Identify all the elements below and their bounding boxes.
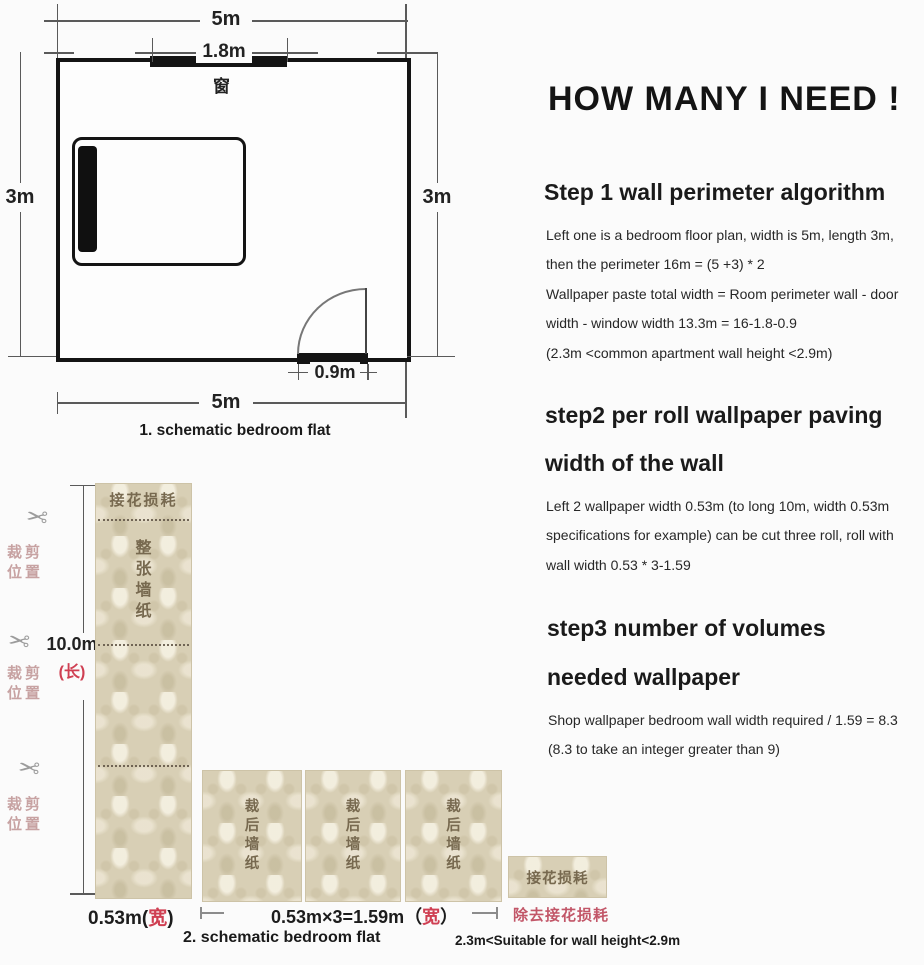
dim-door-plusR-h xyxy=(357,372,377,374)
step1-heading: Step 1 wall perimeter algorithm xyxy=(544,179,885,206)
total-width-suffix: ） xyxy=(440,907,458,927)
roll-diagram-caption: 2. schematic bedroom flat xyxy=(183,929,380,947)
roll-dim-tick-bottom xyxy=(70,893,97,895)
scissors-icon: ✂ xyxy=(6,625,31,658)
step1-body: Left one is a bedroom floor plan, width … xyxy=(546,221,898,368)
bed xyxy=(72,137,246,266)
cut-position-line1: 裁剪 xyxy=(7,795,43,815)
step1-line: then the perimeter 16m = (5 +3) * 2 xyxy=(546,250,898,279)
step1-line: Left one is a bedroom floor plan, width … xyxy=(546,221,898,250)
dim-door-label: 0.9m xyxy=(310,362,360,383)
step2-line: wall width 0.53 * 3-1.59 xyxy=(546,551,894,580)
wall-height-note: 2.3m<Suitable for wall height<2.9m xyxy=(455,933,680,948)
dim-ext-right xyxy=(405,4,407,58)
scissors-icon: ✂ xyxy=(16,752,41,785)
step3-body: Shop wallpaper bedroom wall width requir… xyxy=(548,706,898,765)
cut-position-line2: 位置 xyxy=(7,684,43,704)
dim-window-tick-left xyxy=(152,38,154,62)
dim-bottom-tick-left xyxy=(57,392,59,414)
extent-tick-right-h xyxy=(472,912,498,914)
total-width-unit: 宽 xyxy=(422,907,440,927)
roll-width-label: 0.53m(宽) xyxy=(88,903,174,930)
total-width-prefix: 0.53m×3=1.59m（ xyxy=(271,907,422,927)
roll-length-unit: (长) xyxy=(48,658,96,682)
extent-tick-left-h xyxy=(200,912,224,914)
roll-width-unit: 宽 xyxy=(148,908,167,929)
cut-roll-label: 裁后墙纸 xyxy=(346,798,361,874)
pattern-waste-label: 接花损耗 xyxy=(96,489,191,510)
step3-heading-line2: needed wallpaper xyxy=(547,664,740,691)
full-roll-label: 整张墙纸 xyxy=(135,538,153,622)
cut-roll-strip: 裁后墙纸 xyxy=(202,770,302,902)
dim-bottom-label: 5m xyxy=(199,391,253,414)
floor-plan-caption: 1. schematic bedroom flat xyxy=(120,422,350,440)
step3-heading-line1: step3 number of volumes xyxy=(547,615,826,642)
cut-line xyxy=(98,644,189,646)
step2-heading-line2: width of the wall xyxy=(545,450,724,477)
roll-dim-line-top xyxy=(83,485,85,633)
dim-ext-left xyxy=(57,4,59,58)
bed-pillow xyxy=(78,146,97,252)
dim-right-label: 3m xyxy=(421,183,453,212)
remove-waste-label: 除去接花损耗 xyxy=(513,904,609,925)
dim-right-bottom-tick xyxy=(407,356,455,358)
roll-dim-tick-top xyxy=(70,485,97,487)
scissors-icon: ✂ xyxy=(24,501,49,534)
cut-roll-strip: 裁后墙纸 xyxy=(405,770,502,902)
dim-top-label: 5m xyxy=(200,8,252,31)
cut-position-label: 裁剪 位置 xyxy=(7,664,43,704)
step1-line: Wallpaper paste total width = Room perim… xyxy=(546,280,898,309)
cut-position-line1: 裁剪 xyxy=(7,543,43,563)
cut-line xyxy=(98,765,189,767)
door-leaf xyxy=(365,288,367,354)
page: 窗 5m 1.8m 3m 3m 0.9m 5m 1. schematic bed… xyxy=(0,0,924,965)
step3-line: Shop wallpaper bedroom wall width requir… xyxy=(548,706,898,735)
roll-dim-line-bottom xyxy=(83,700,85,894)
step2-line: specifications for example) can be cut t… xyxy=(546,521,894,550)
dim-left-bottom-tick xyxy=(8,356,56,358)
full-roll-strip: 接花损耗 整张墙纸 xyxy=(95,483,192,899)
dim-door-plusL-h xyxy=(288,372,308,374)
cut-position-line2: 位置 xyxy=(7,563,43,583)
page-title: HOW MANY I NEED ! xyxy=(548,80,901,119)
splice-waste-label: 接花损耗 xyxy=(509,867,606,888)
dim-seg-right xyxy=(377,52,437,54)
cut-position-label: 裁剪 位置 xyxy=(7,543,43,583)
dim-window-label: 1.8m xyxy=(196,41,252,63)
roll-length-value: 10.0m xyxy=(42,634,102,655)
extent-tick-right-v xyxy=(496,907,498,919)
cut-position-label: 裁剪 位置 xyxy=(7,795,43,835)
dim-bottom-tick-right xyxy=(405,362,407,418)
roll-width-suffix: ) xyxy=(167,908,173,929)
dim-window-tick-right xyxy=(287,38,289,62)
cut-position-line1: 裁剪 xyxy=(7,664,43,684)
window-label: 窗 xyxy=(213,72,230,97)
dim-left-label: 3m xyxy=(5,183,35,212)
step2-body: Left 2 wallpaper width 0.53m (to long 10… xyxy=(546,492,894,580)
dim-seg-left xyxy=(44,52,74,54)
step2-heading-line1: step2 per roll wallpaper paving xyxy=(545,402,882,429)
cut-roll-label: 裁后墙纸 xyxy=(446,798,461,874)
total-width-label: 0.53m×3=1.59m（宽） xyxy=(271,903,458,929)
cut-roll-strip: 裁后墙纸 xyxy=(305,770,401,902)
step1-line: width - window width 13.3m = 16-1.8-0.9 xyxy=(546,309,898,338)
cut-roll-label: 裁后墙纸 xyxy=(245,798,260,874)
step1-line: (2.3m <common apartment wall height <2.9… xyxy=(546,339,898,368)
cut-position-line2: 位置 xyxy=(7,815,43,835)
roll-width-prefix: 0.53m( xyxy=(88,908,148,929)
splice-waste-strip: 接花损耗 xyxy=(508,856,607,898)
cut-line xyxy=(98,519,189,521)
step3-line: (8.3 to take an integer greater than 9) xyxy=(548,735,898,764)
step2-line: Left 2 wallpaper width 0.53m (to long 10… xyxy=(546,492,894,521)
